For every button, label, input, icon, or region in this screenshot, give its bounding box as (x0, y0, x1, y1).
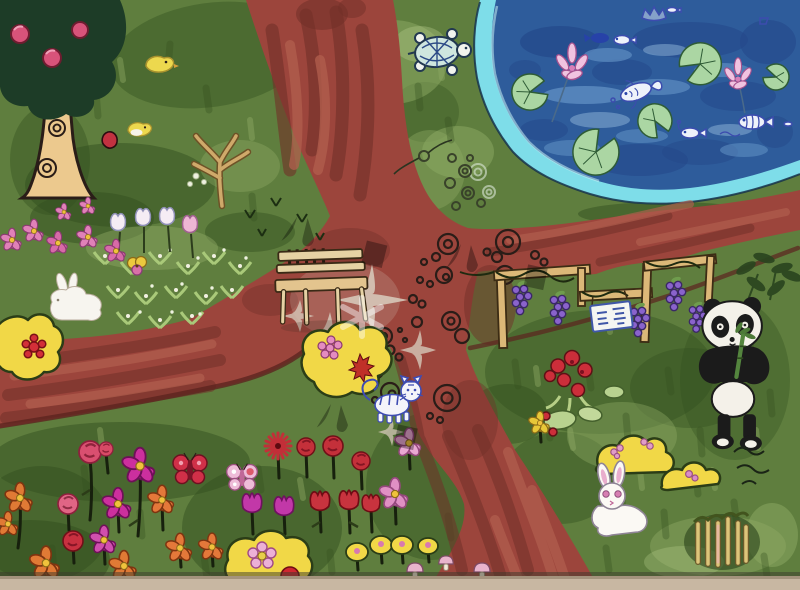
table-edge (0, 572, 800, 590)
panda-belly (712, 381, 755, 417)
red-bud (102, 132, 117, 148)
spiky-dahlia (265, 433, 291, 459)
panda-arms (699, 345, 770, 384)
painting-canvas: 儿童画网 (0, 0, 800, 590)
yellow-bush-left (0, 314, 63, 379)
painting-photo: 儿童画网 (0, 0, 800, 590)
